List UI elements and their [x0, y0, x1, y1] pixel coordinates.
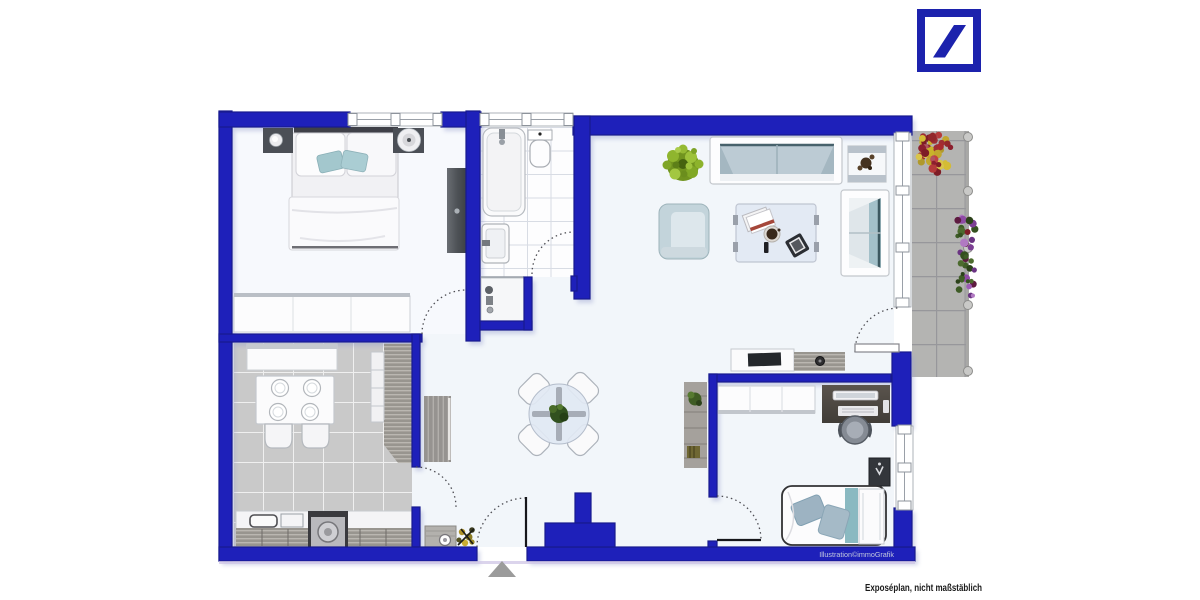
- svg-text:Illustration©immoGrafik: Illustration©immoGrafik: [819, 550, 894, 559]
- svg-text:Exposéplan, nicht maßstäblich: Exposéplan, nicht maßstäblich: [865, 583, 982, 594]
